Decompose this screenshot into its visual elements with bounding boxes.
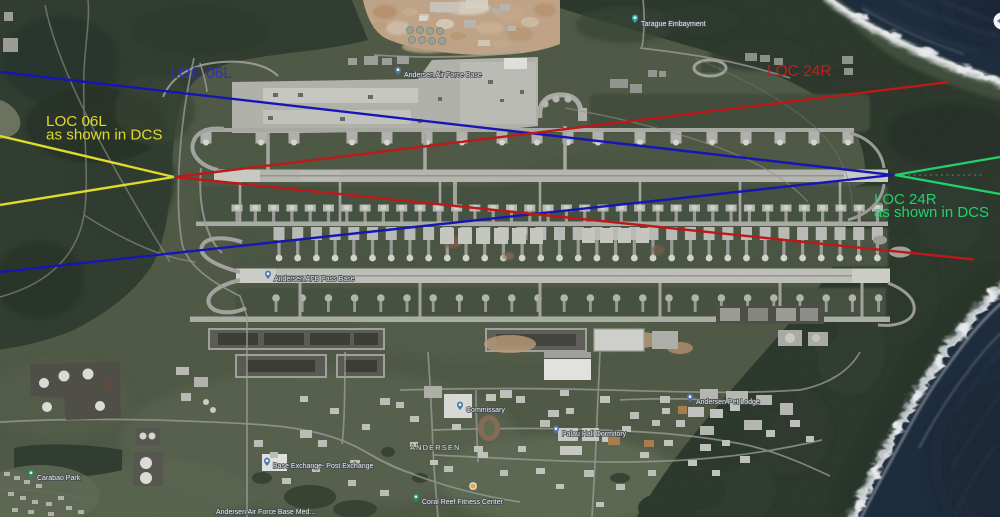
svg-text:ANDERSEN: ANDERSEN <box>410 443 460 452</box>
svg-text:Tarague Embayment: Tarague Embayment <box>641 21 706 28</box>
svg-text:LOC 06L: LOC 06L <box>170 65 232 82</box>
svg-text:Andersen Pet Lodge: Andersen Pet Lodge <box>696 399 760 406</box>
svg-text:LOC 24R: LOC 24R <box>767 63 832 80</box>
svg-text:as shown in DCS: as shown in DCS <box>46 127 163 144</box>
svg-text:Commissary: Commissary <box>466 407 505 414</box>
svg-text:Andersen AFB Pass Base: Andersen AFB Pass Base <box>274 276 355 283</box>
svg-text:Carabao Park: Carabao Park <box>37 475 81 482</box>
svg-text:Base Exchange- Post Exchange: Base Exchange- Post Exchange <box>273 463 374 470</box>
svg-text:Andersen Air Force Base: Andersen Air Force Base <box>404 72 482 79</box>
svg-text:Coral Reef Fitness Center: Coral Reef Fitness Center <box>422 499 504 506</box>
svg-text:Andersen Air Force Base Med...: Andersen Air Force Base Med... <box>216 509 315 516</box>
svg-text:as shown in DCS: as shown in DCS <box>874 204 989 221</box>
svg-text:Palau Hall Dormitory: Palau Hall Dormitory <box>562 431 627 438</box>
